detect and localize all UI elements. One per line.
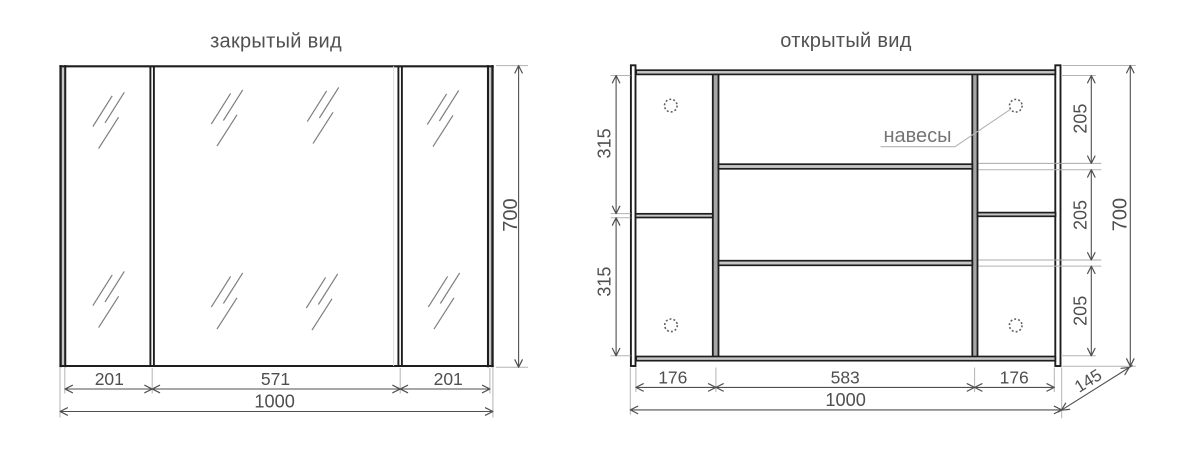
svg-text:205: 205 — [1071, 200, 1091, 230]
svg-text:571: 571 — [261, 369, 290, 389]
svg-text:145: 145 — [1071, 365, 1105, 396]
svg-text:закрытый вид: закрытый вид — [210, 30, 342, 52]
svg-text:1000: 1000 — [254, 391, 294, 411]
svg-text:1000: 1000 — [825, 390, 865, 410]
svg-text:315: 315 — [595, 128, 615, 158]
svg-text:201: 201 — [95, 369, 124, 389]
svg-text:205: 205 — [1071, 296, 1091, 326]
svg-text:205: 205 — [1071, 104, 1091, 134]
svg-text:583: 583 — [831, 368, 860, 388]
svg-text:315: 315 — [595, 267, 615, 297]
svg-text:176: 176 — [658, 368, 687, 388]
svg-text:открытый вид: открытый вид — [780, 30, 911, 52]
svg-text:навесы: навесы — [883, 125, 951, 147]
svg-text:201: 201 — [434, 369, 463, 389]
svg-text:700: 700 — [1109, 198, 1131, 231]
svg-text:176: 176 — [1000, 368, 1029, 388]
svg-text:700: 700 — [500, 198, 522, 231]
